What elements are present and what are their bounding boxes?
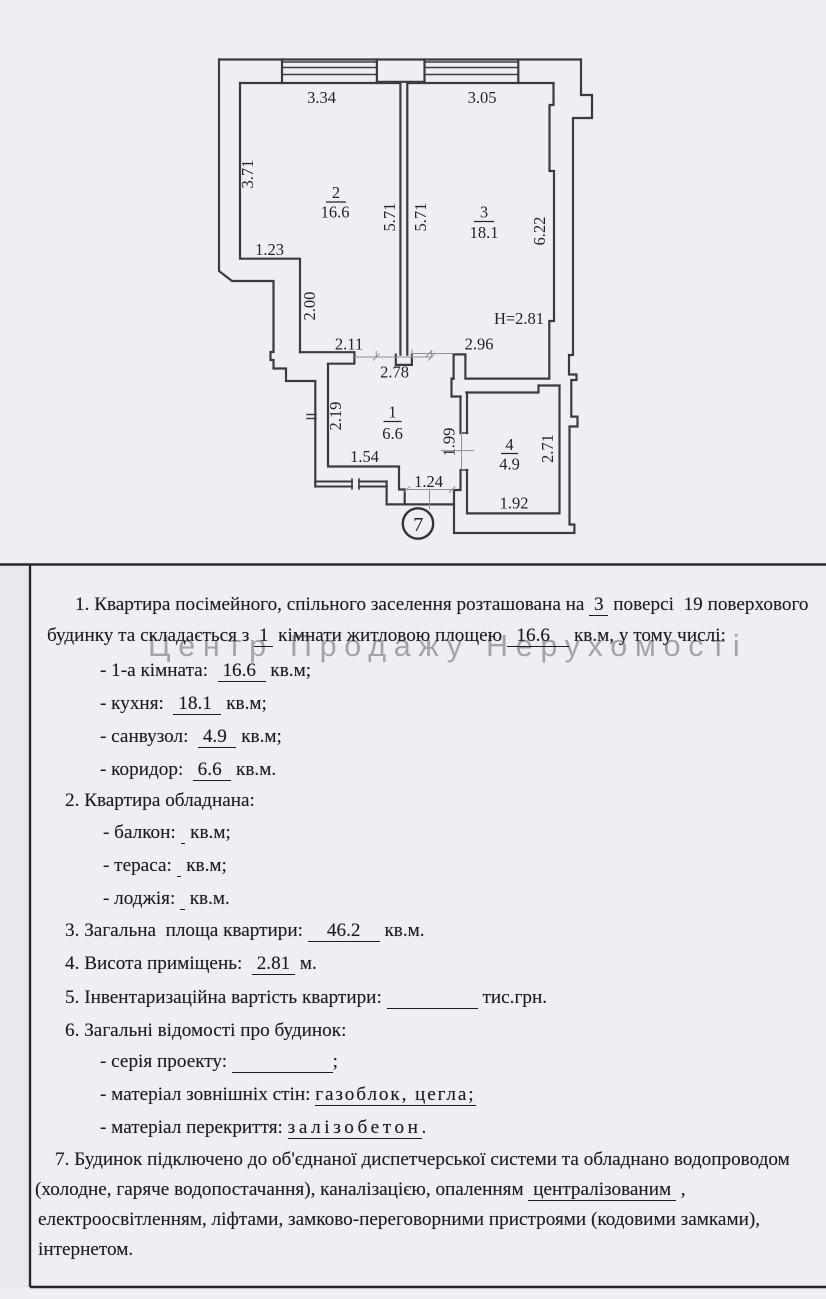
svg-text:1.92: 1.92 xyxy=(500,494,529,513)
svg-text:2.11: 2.11 xyxy=(335,335,363,354)
svg-text:2.71: 2.71 xyxy=(538,434,557,463)
svg-text:2.96: 2.96 xyxy=(465,335,494,354)
svg-text:5.71: 5.71 xyxy=(380,203,399,232)
svg-text:2.00: 2.00 xyxy=(300,292,319,321)
svg-text:7: 7 xyxy=(413,514,423,536)
svg-text:4: 4 xyxy=(505,435,513,454)
svg-text:1.99: 1.99 xyxy=(440,428,459,457)
svg-text:1.23: 1.23 xyxy=(255,240,284,259)
svg-text:3.34: 3.34 xyxy=(307,88,336,107)
svg-text:1.54: 1.54 xyxy=(350,447,379,466)
svg-text:6.6: 6.6 xyxy=(382,424,403,443)
svg-text:H=2.81: H=2.81 xyxy=(494,309,544,328)
svg-text:2.19: 2.19 xyxy=(326,402,345,431)
svg-text:3.05: 3.05 xyxy=(468,88,497,107)
svg-text:5.71: 5.71 xyxy=(411,203,430,232)
svg-text:3.71: 3.71 xyxy=(238,160,257,189)
svg-text:4.9: 4.9 xyxy=(499,455,520,474)
svg-text:1: 1 xyxy=(388,403,396,422)
svg-text:2.78: 2.78 xyxy=(380,363,409,382)
svg-text:16.6: 16.6 xyxy=(321,203,350,222)
svg-text:1.24: 1.24 xyxy=(414,472,443,491)
svg-text:3: 3 xyxy=(480,203,488,222)
svg-text:18.1: 18.1 xyxy=(470,223,499,242)
svg-text:6.22: 6.22 xyxy=(530,217,549,246)
svg-text:2: 2 xyxy=(332,183,340,202)
